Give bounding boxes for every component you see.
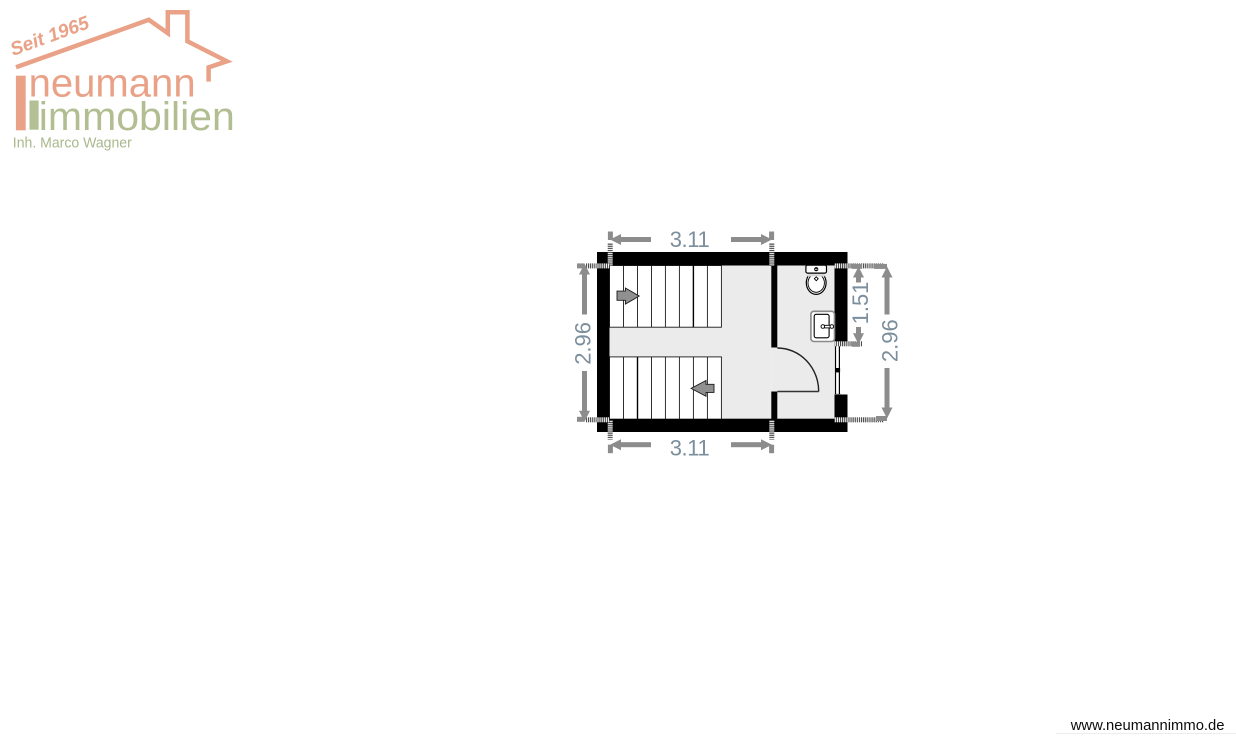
svg-text:www.neumannimmo.de: www.neumannimmo.de <box>1070 718 1225 734</box>
svg-text:immobilien: immobilien <box>39 95 235 139</box>
svg-text:1.51: 1.51 <box>848 282 873 325</box>
svg-text:3.11: 3.11 <box>670 227 710 252</box>
svg-text:3.11: 3.11 <box>670 436 710 461</box>
svg-text:Inh. Marco Wagner: Inh. Marco Wagner <box>13 134 132 151</box>
svg-text:2.96: 2.96 <box>878 319 903 362</box>
svg-text:2.96: 2.96 <box>571 322 596 365</box>
